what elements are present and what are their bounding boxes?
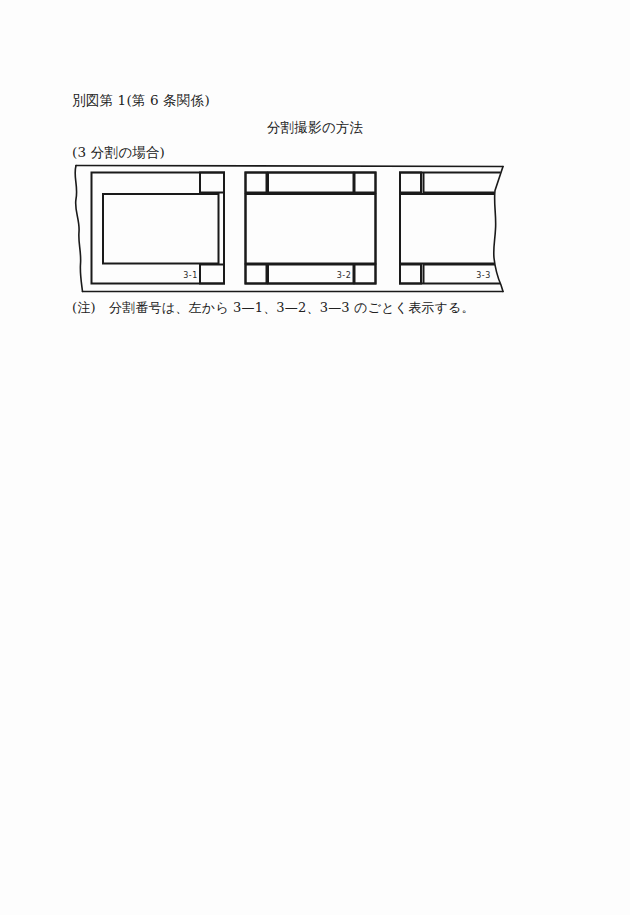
frame-outer-border	[246, 173, 376, 284]
frame-corner-box-top-right	[355, 173, 376, 193]
frame-3-2: 3-2	[246, 173, 376, 284]
film-top-edge	[76, 166, 503, 167]
note-text: (注) 分割番号は、左から 3—1、3—2、3—3 のごとく表示する。	[72, 300, 475, 315]
frame-outer-border	[400, 173, 501, 284]
frame-corner-box-bottom-right	[200, 265, 224, 284]
frame-3-1: 3-1	[92, 173, 225, 284]
frame-image-area	[103, 194, 219, 264]
split-photography-diagram: 3-1 3-2 3-3	[55, 155, 520, 300]
frame-image-area	[246, 194, 376, 264]
frame-corner-box-top-right	[200, 173, 224, 193]
frame-label: 3-2	[337, 271, 352, 280]
document-page: 別図第 1(第 6 条関係) 分割撮影の方法 (3 分割の場合) 3-1	[0, 0, 630, 915]
film-torn-edge-right	[494, 167, 503, 292]
figure-label: 別図第 1(第 6 条関係)	[72, 93, 210, 108]
frame-corner-box-bottom-left	[246, 265, 267, 284]
frame-top-strip	[268, 173, 354, 193]
frame-label: 3-3	[476, 271, 491, 280]
frame-corner-box-top-left	[400, 173, 421, 193]
frame-image-area	[400, 194, 495, 264]
frame-corner-box-bottom-right	[355, 265, 376, 284]
frame-label: 3-1	[183, 271, 198, 280]
film-strip	[75, 166, 503, 292]
film-torn-edge-left	[75, 166, 82, 292]
frame-corner-box-bottom-left	[400, 265, 421, 284]
frame-outer-border	[92, 173, 225, 284]
frame-corner-box-top-left	[246, 173, 267, 193]
frame-3-3: 3-3	[400, 173, 501, 284]
page-title: 分割撮影の方法	[0, 120, 630, 135]
frame-top-strip	[424, 173, 495, 193]
